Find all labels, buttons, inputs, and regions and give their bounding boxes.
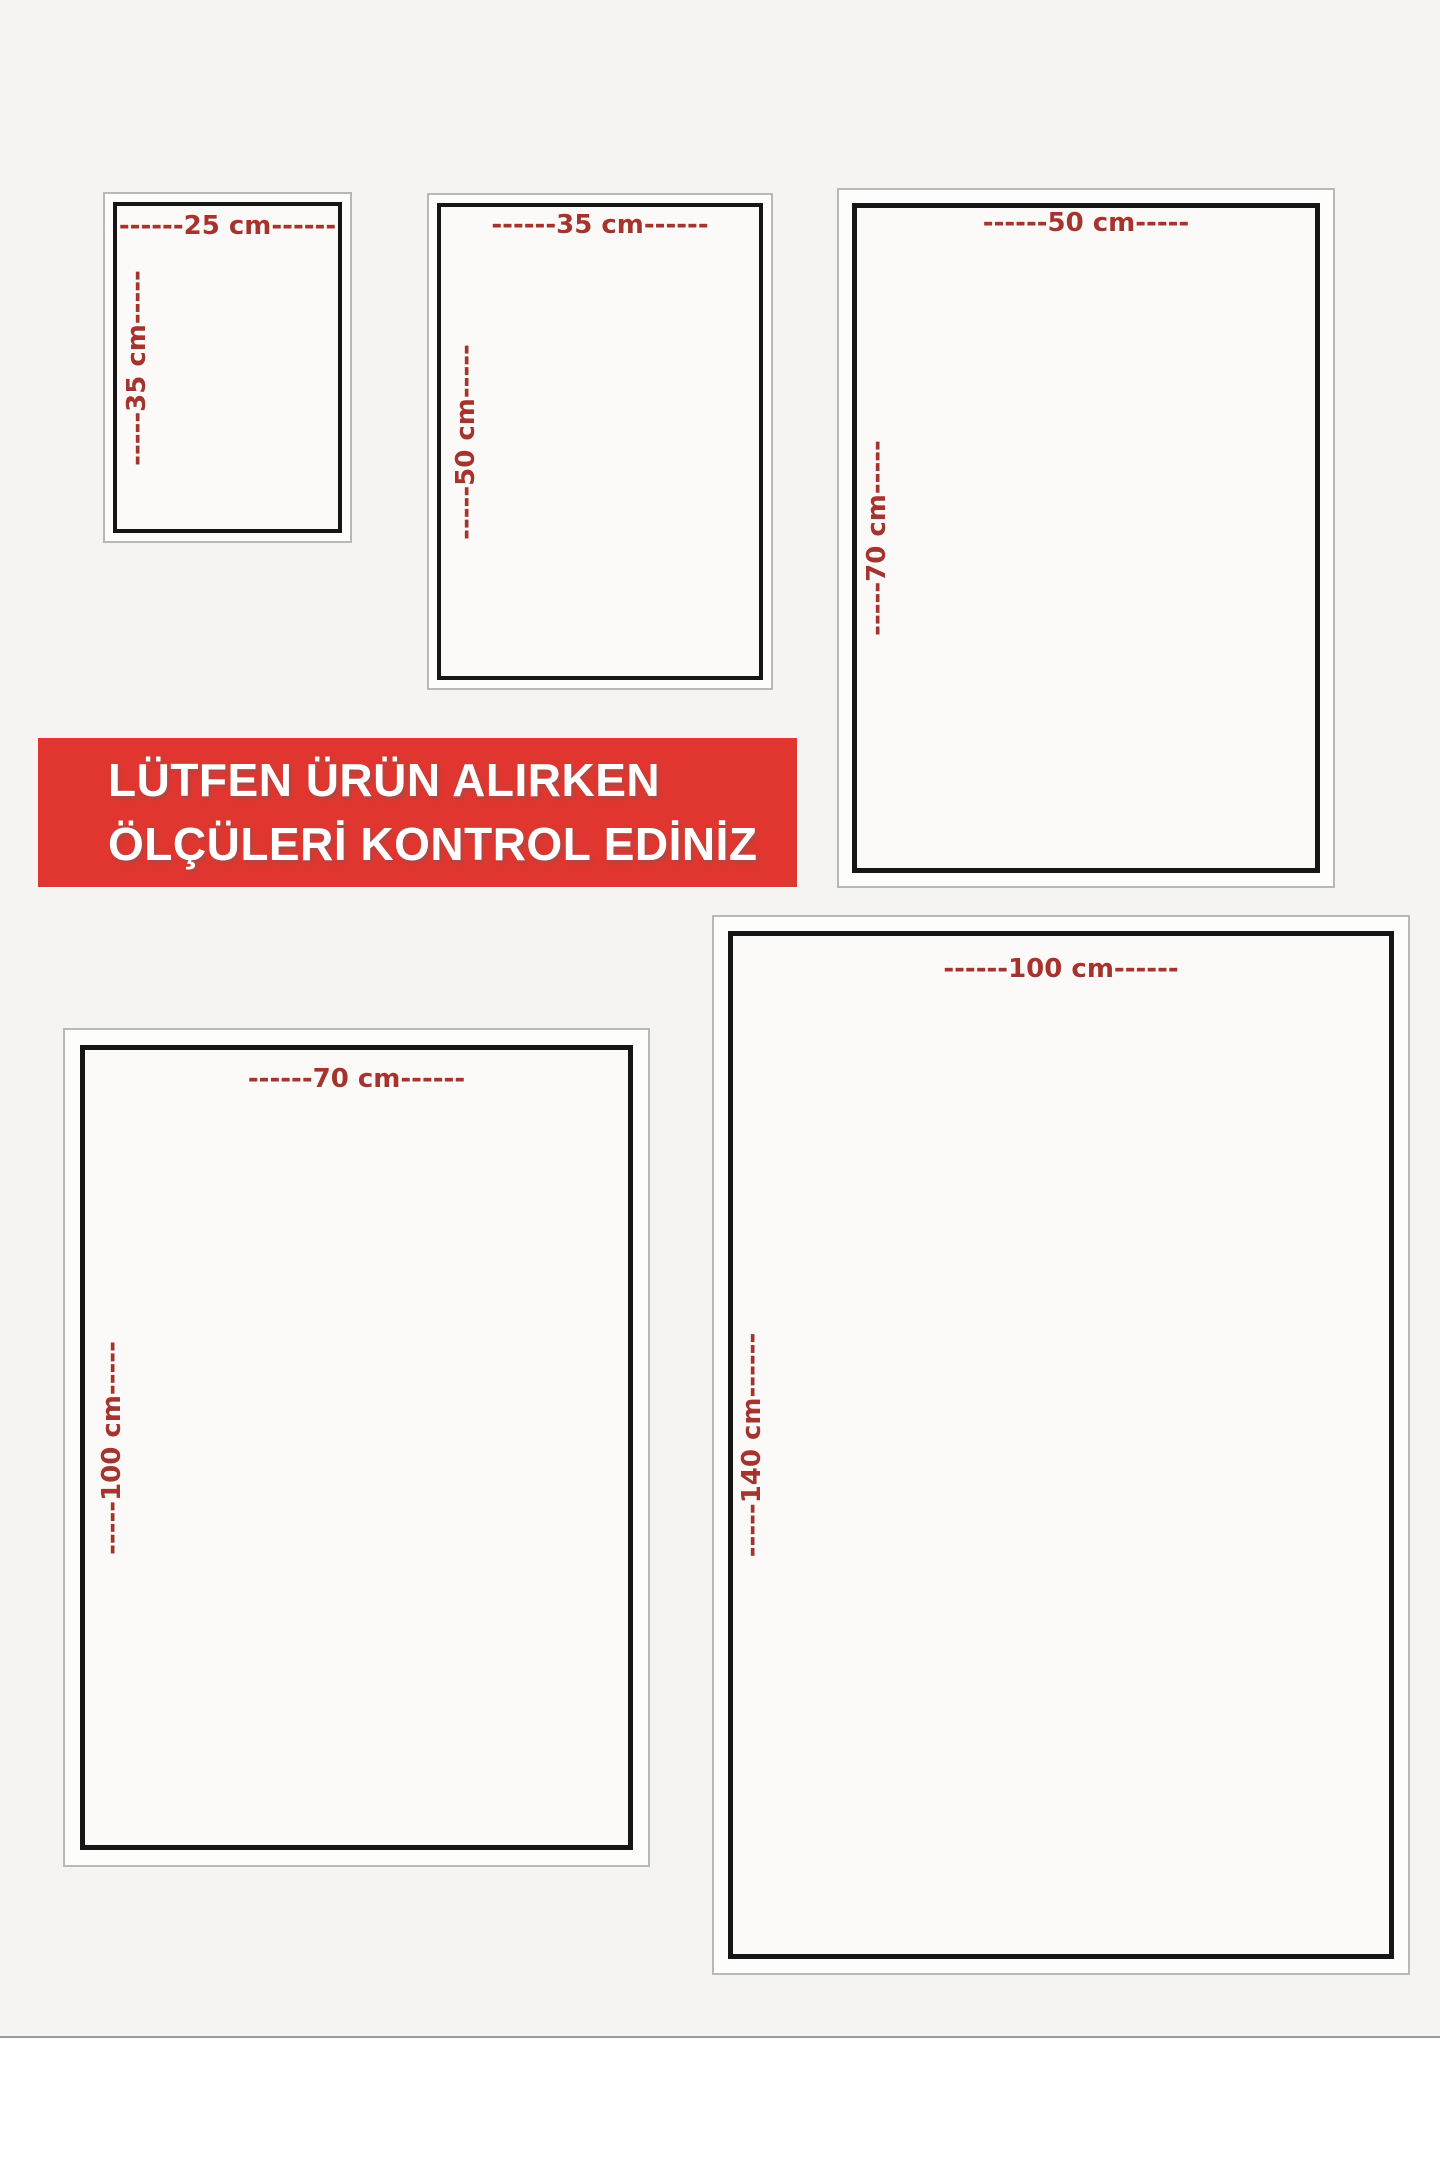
width-dimension-label-100cm: ------100 cm------	[943, 956, 1178, 982]
size-guide-canvas: ------25 cm------ -----35 cm----- ------…	[0, 0, 1440, 2038]
size-box-50x70-frame: ------50 cm----- -----70 cm-----	[852, 203, 1320, 873]
size-box-35x50-frame: ------35 cm------ -----50 cm-----	[437, 203, 763, 680]
size-box-25x35-frame: ------25 cm------ -----35 cm-----	[113, 202, 342, 533]
height-dimension-label-100cm: -----100 cm-----	[99, 1341, 125, 1555]
warning-banner-line-1: LÜTFEN ÜRÜN ALIRKEN	[108, 748, 797, 812]
height-dimension-label-70cm: -----70 cm-----	[864, 440, 890, 636]
width-dimension-label-25cm: ------25 cm------	[119, 213, 336, 239]
size-box-100x140-frame: ------100 cm------ -----140 cm------	[728, 931, 1394, 1959]
size-box-70x100: ------70 cm------ -----100 cm-----	[63, 1028, 650, 1867]
width-dimension-label-50cm: ------50 cm-----	[983, 210, 1189, 236]
height-dimension-label-35cm: -----35 cm-----	[124, 270, 150, 466]
width-dimension-label-35cm: ------35 cm------	[491, 212, 708, 238]
height-dimension-label-140cm: -----140 cm------	[739, 1333, 765, 1558]
size-box-25x35: ------25 cm------ -----35 cm-----	[103, 192, 352, 543]
warning-banner-line-2: ÖLÇÜLERİ KONTROL EDİNİZ	[108, 812, 797, 876]
width-dimension-label-70cm: ------70 cm------	[248, 1066, 465, 1092]
size-box-70x100-frame: ------70 cm------ -----100 cm-----	[80, 1045, 633, 1850]
height-dimension-label-50cm: -----50 cm-----	[453, 344, 479, 540]
size-box-100x140: ------100 cm------ -----140 cm------	[712, 915, 1410, 1975]
size-box-50x70: ------50 cm----- -----70 cm-----	[837, 188, 1335, 888]
warning-banner: LÜTFEN ÜRÜN ALIRKEN ÖLÇÜLERİ KONTROL EDİ…	[38, 738, 797, 887]
size-box-35x50: ------35 cm------ -----50 cm-----	[427, 193, 773, 690]
